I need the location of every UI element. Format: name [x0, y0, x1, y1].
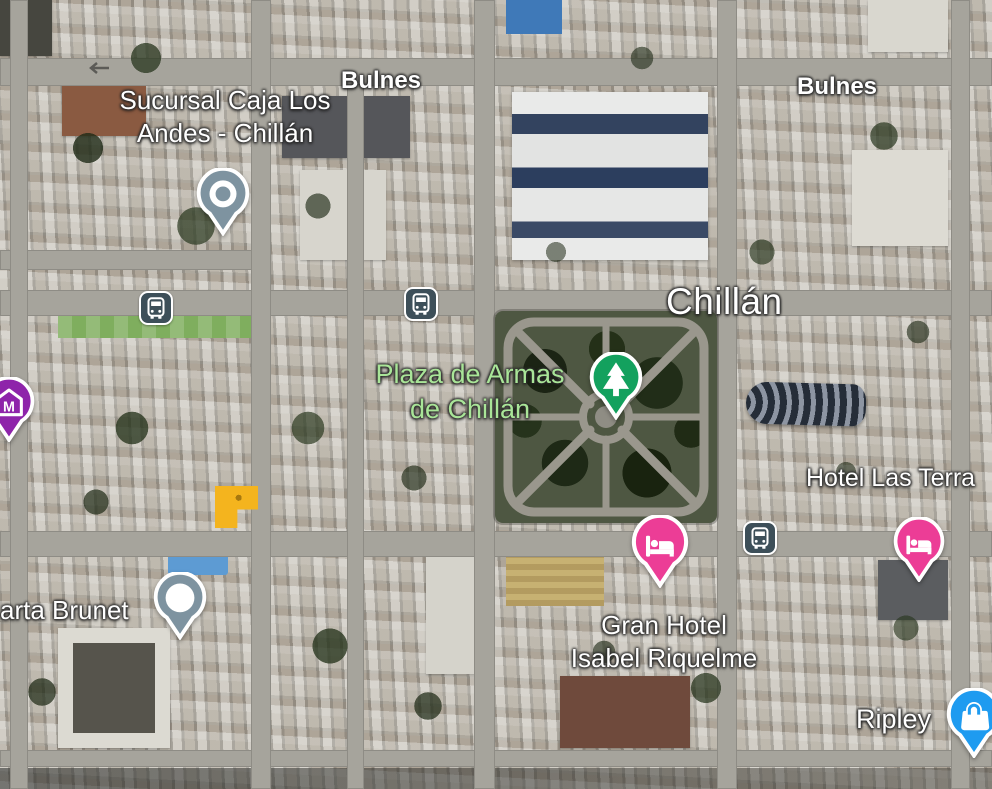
- poi-label-sucursal-caja-los-andes[interactable]: Sucursal Caja Los Andes - Chillán: [85, 84, 365, 150]
- road-vertical: [951, 0, 970, 789]
- bus-stop-icon-west[interactable]: [139, 291, 173, 325]
- building-roof: [300, 170, 386, 260]
- bus-stop-icon-center[interactable]: [404, 287, 438, 321]
- one-way-arrow-icon: [84, 61, 110, 80]
- map-pin-balloon: [153, 572, 207, 640]
- museum-pin[interactable]: M: [0, 377, 35, 442]
- road-horizontal: [0, 750, 992, 767]
- map-pin-balloon: [946, 688, 992, 758]
- building-roof: [560, 676, 690, 748]
- poi-label-marta-brunet[interactable]: arta Brunet: [0, 595, 129, 626]
- poi-label-gran-hotel-isabel-riquelme[interactable]: Gran Hotel Isabel Riquelme: [539, 609, 789, 675]
- building-roof: [852, 150, 948, 246]
- store-pin-ripley[interactable]: [946, 688, 992, 758]
- building-roof: [868, 0, 948, 52]
- poi-label-line: Isabel Riquelme: [539, 642, 789, 675]
- satellite-map[interactable]: Bulnes Bulnes Chillán Sucursal Caja Los …: [0, 0, 992, 789]
- park-pin-plaza[interactable]: [589, 352, 643, 420]
- bus-icon: [406, 289, 436, 319]
- school-building-roof: [512, 92, 708, 260]
- poi-label-line: Plaza de Armas: [350, 357, 590, 392]
- bus-icon: [745, 523, 775, 553]
- hotel-pin-gran-hotel[interactable]: [631, 515, 689, 588]
- bottom-block-shadow: [0, 768, 992, 789]
- street-label-bulnes-east: Bulnes: [797, 73, 877, 101]
- map-pin-balloon: [196, 168, 250, 236]
- poi-label-line: Sucursal Caja Los: [85, 84, 365, 117]
- blue-roof: [506, 0, 562, 34]
- road-horizontal: [0, 250, 266, 270]
- bus-stop-icon-east[interactable]: [743, 521, 777, 555]
- city-label-chillan: Chillán: [666, 281, 783, 323]
- hotel-pin-las-terrazas[interactable]: [893, 517, 945, 582]
- bus-icon: [141, 293, 171, 323]
- map-pin-balloon: [589, 352, 643, 420]
- courtyard-building: [58, 628, 170, 748]
- poi-pin-sucursal[interactable]: [196, 168, 250, 236]
- poi-label-ripley[interactable]: Ripley: [856, 704, 931, 735]
- road-vertical: [347, 84, 364, 789]
- map-pin-balloon: M: [0, 377, 35, 442]
- dot-icon: [166, 583, 195, 612]
- road-horizontal: [0, 531, 992, 557]
- map-pin-balloon: [893, 517, 945, 582]
- poi-label-line: Gran Hotel: [539, 609, 789, 642]
- map-pin-balloon: [631, 515, 689, 588]
- museum-letter: M: [3, 400, 15, 416]
- poi-label-line: Andes - Chillán: [85, 117, 365, 150]
- poi-label-plaza-de-armas[interactable]: Plaza de Armas de Chillán: [350, 357, 590, 427]
- poi-label-hotel-las-terrazas[interactable]: Hotel Las Terra: [806, 464, 975, 493]
- poi-label-line: de Chillán: [350, 392, 590, 427]
- ribbed-market-roof: [745, 381, 866, 426]
- poi-pin-marta-brunet[interactable]: [153, 572, 207, 640]
